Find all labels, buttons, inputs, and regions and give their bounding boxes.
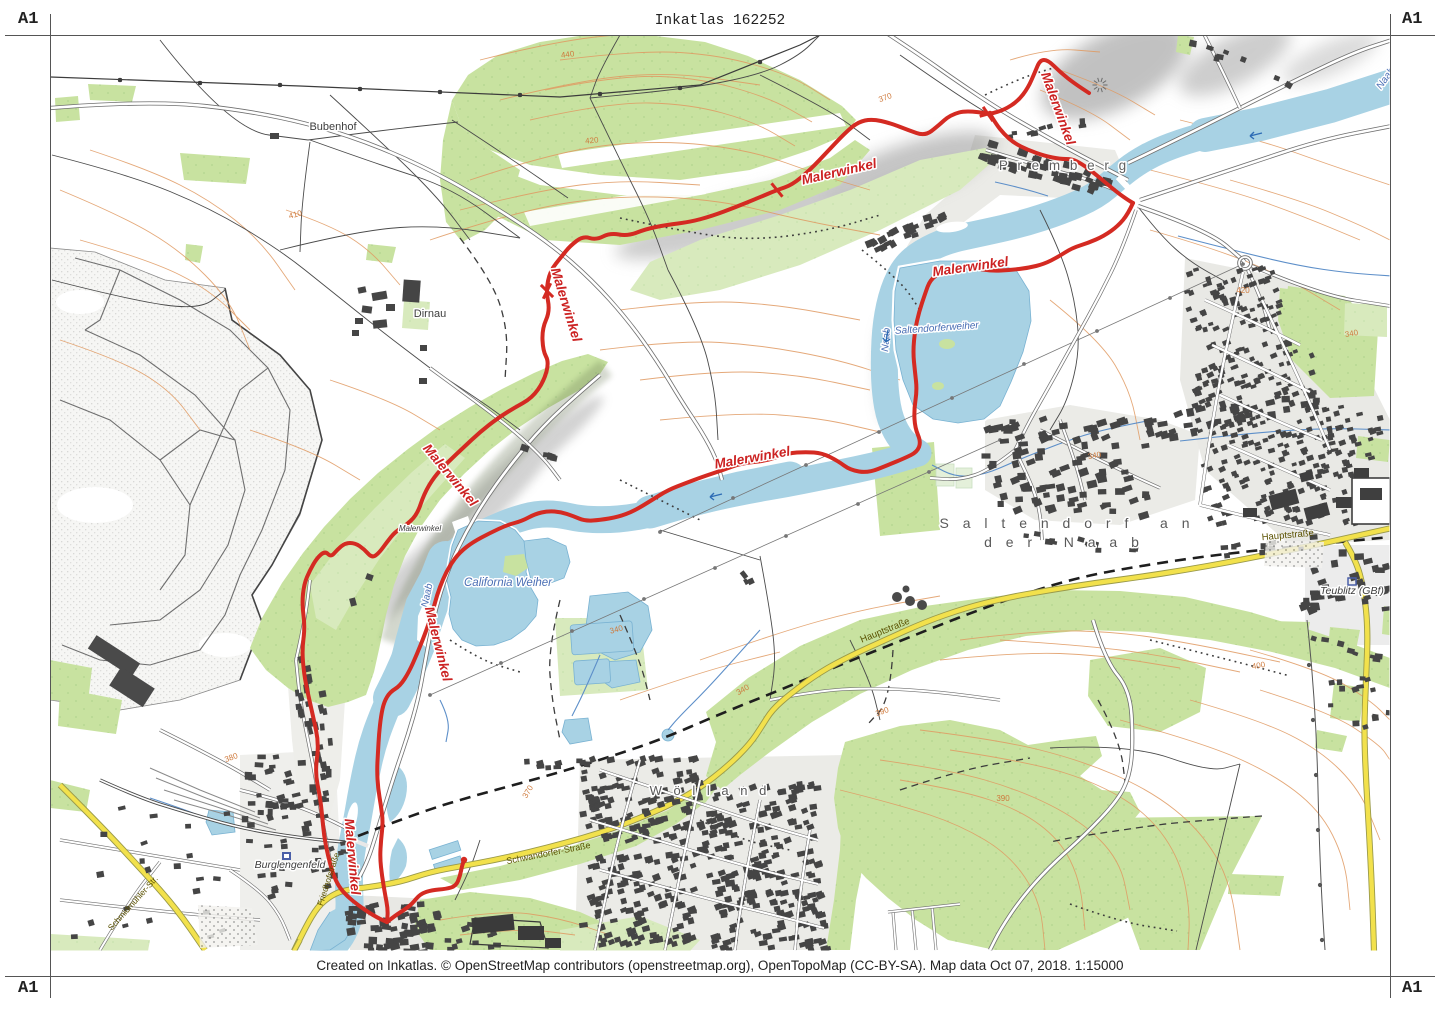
svg-text:California Weiher: California Weiher — [464, 577, 553, 589]
svg-text:440: 440 — [560, 49, 575, 60]
svg-text:d e r N a a b: d e r N a a b — [984, 534, 1144, 550]
svg-text:Malerwinkel: Malerwinkel — [399, 524, 441, 533]
svg-text:420: 420 — [1236, 286, 1250, 295]
svg-text:W ö l l a n d: W ö l l a n d — [650, 783, 771, 798]
svg-text:Teublitz (GBf): Teublitz (GBf) — [1320, 585, 1384, 597]
svg-text:P r e m b e r g: P r e m b e r g — [999, 158, 1129, 173]
svg-text:Dirnau: Dirnau — [414, 308, 446, 320]
svg-text:390: 390 — [996, 794, 1010, 803]
svg-text:Burglengenfeld: Burglengenfeld — [255, 859, 327, 871]
svg-text:Bubenhof: Bubenhof — [309, 121, 357, 133]
svg-text:S a l t e n d o r f a n: S a l t e n d o r f a n — [940, 515, 1195, 531]
svg-text:420: 420 — [585, 135, 600, 145]
